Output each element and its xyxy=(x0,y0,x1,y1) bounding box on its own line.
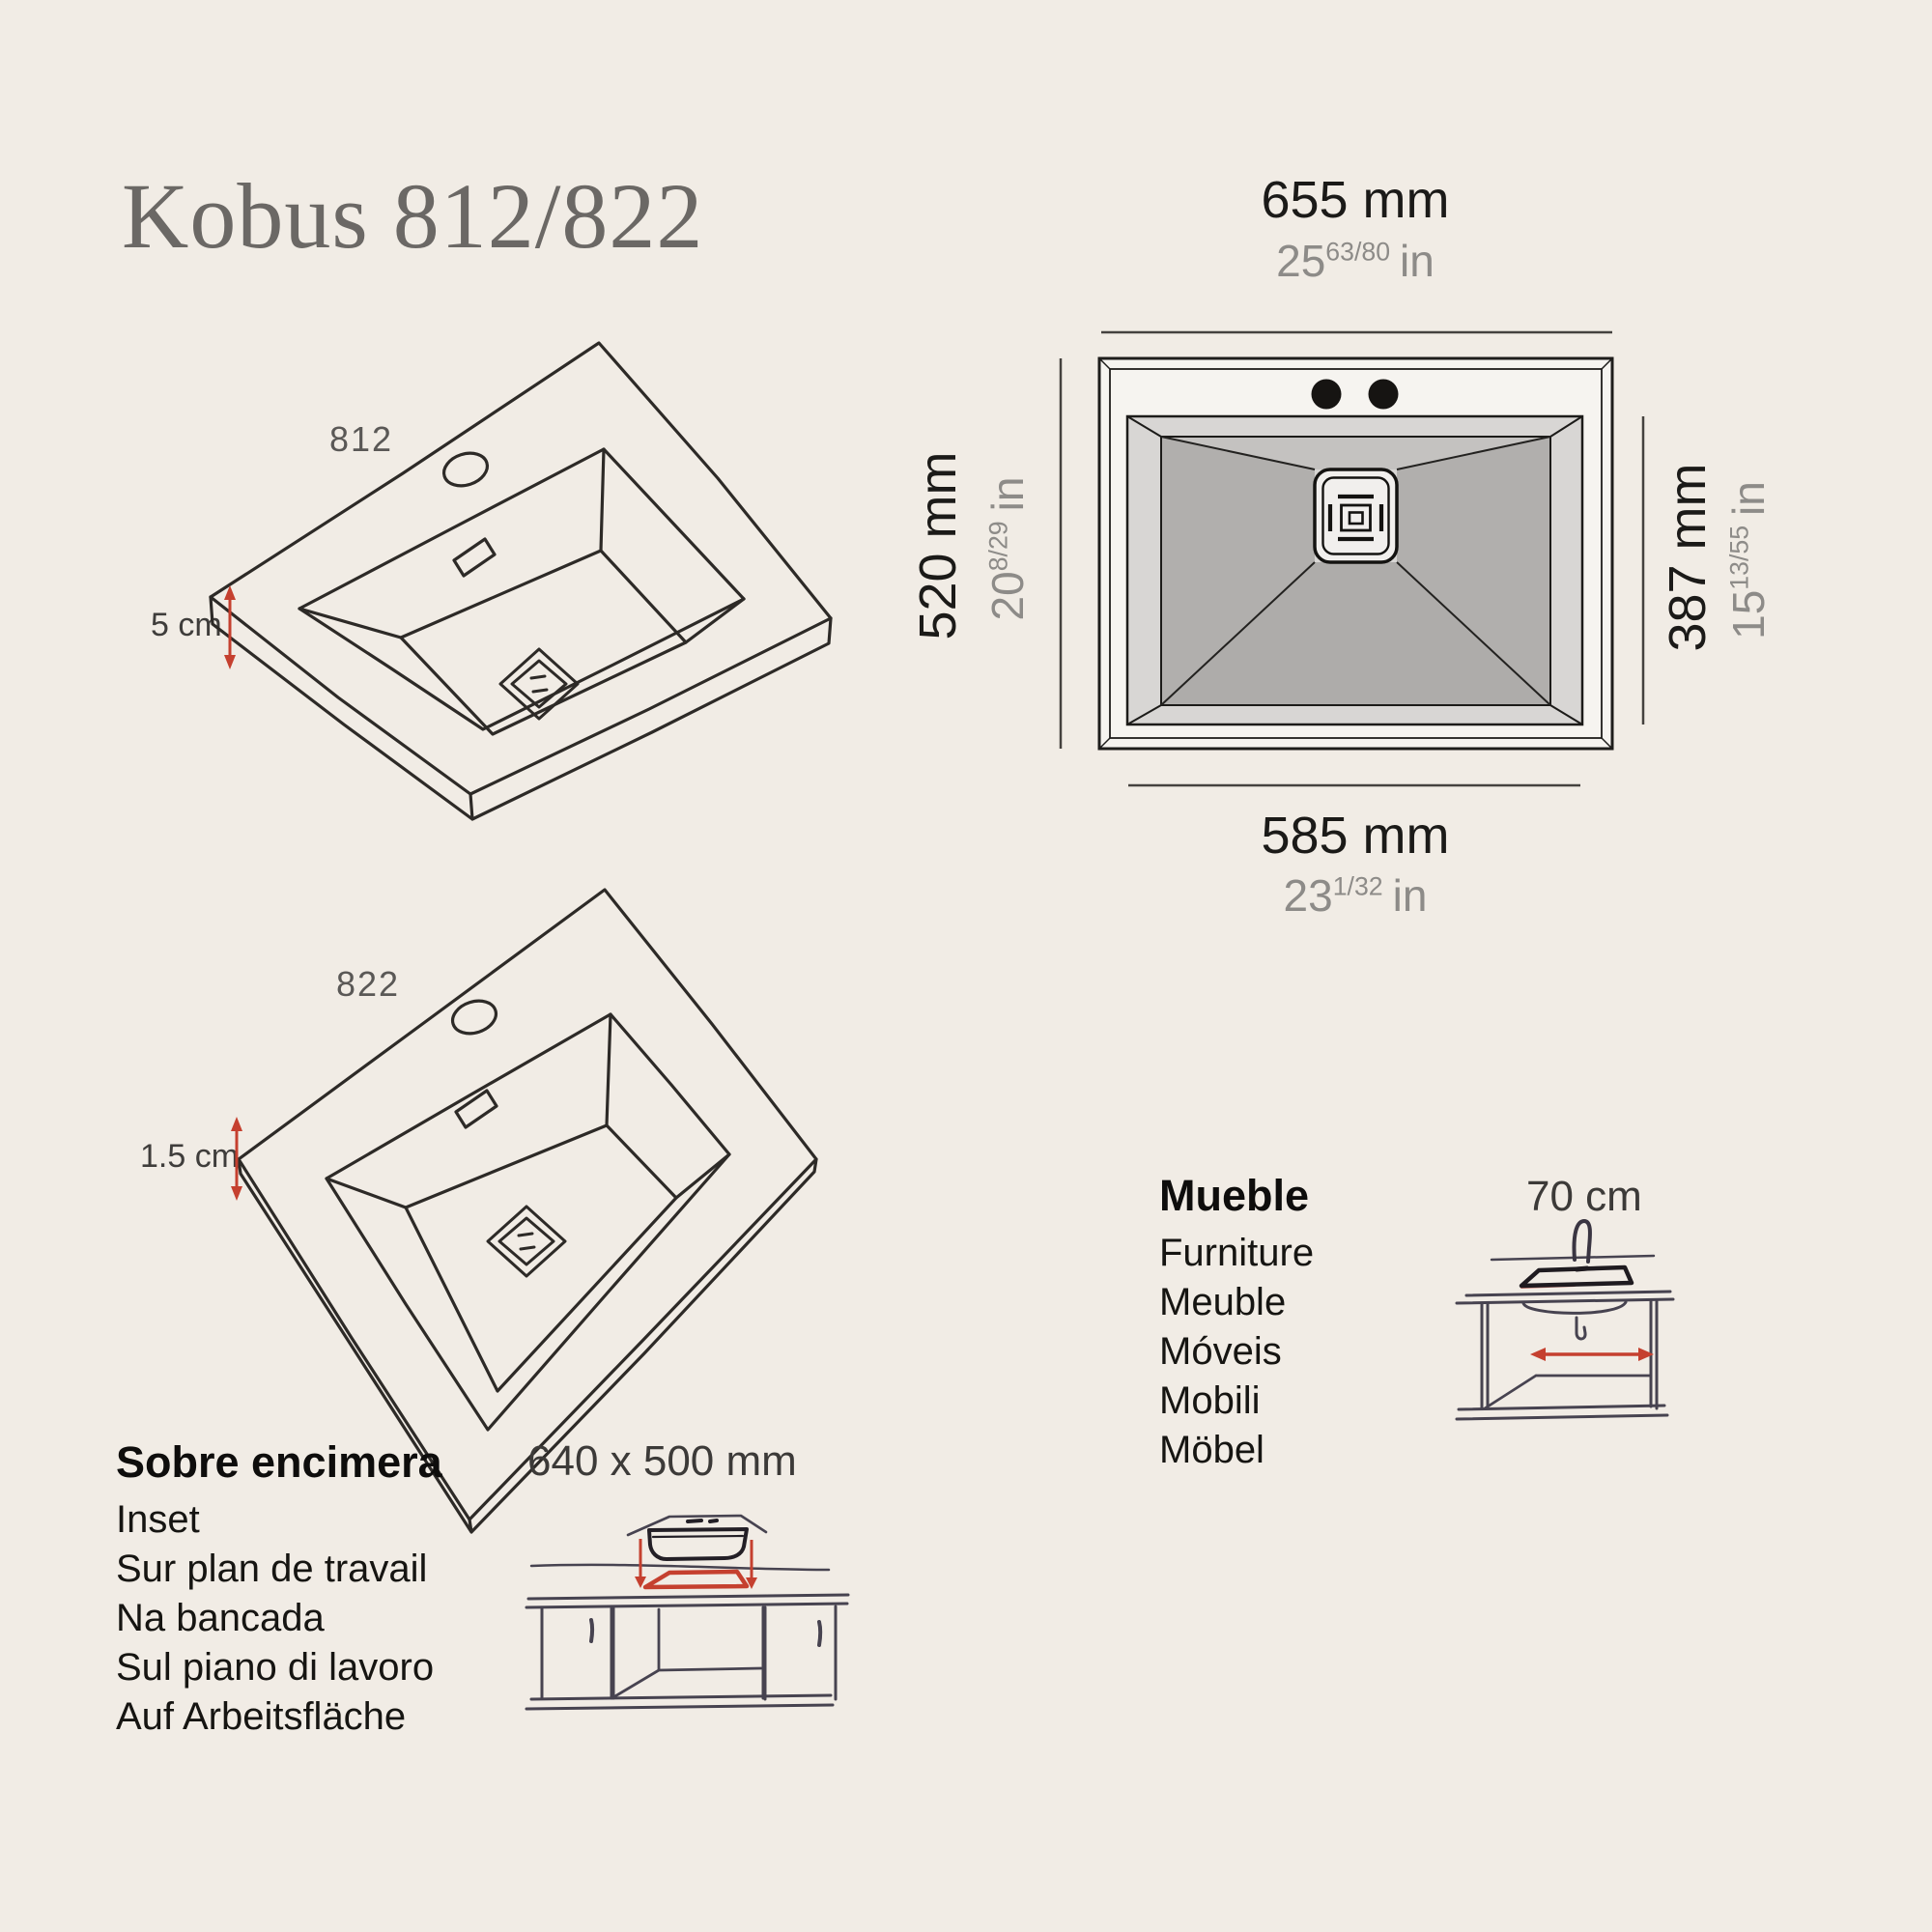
cabinet-base-lines xyxy=(526,1695,833,1709)
furniture-cabinet-sketch xyxy=(1430,1198,1758,1468)
basin-corner-seams xyxy=(299,449,744,642)
drain-icon xyxy=(1315,469,1397,562)
left-door-handle xyxy=(591,1620,592,1641)
dimension-width-mm: 655 mm xyxy=(1261,170,1449,230)
right-door-handle xyxy=(819,1622,820,1645)
furniture-item: Furniture xyxy=(1159,1229,1314,1278)
counter-front-edge xyxy=(526,1595,848,1607)
furniture-item: Móveis xyxy=(1159,1327,1314,1377)
faucet-icon xyxy=(1574,1221,1589,1262)
basin-floor-edge xyxy=(406,1125,676,1391)
inset-item: Na bancada xyxy=(116,1594,442,1643)
dimension-width-inches: 2563/80in xyxy=(1276,235,1435,287)
overflow-slot-icon xyxy=(456,1091,497,1127)
basin-opening-edge xyxy=(299,449,744,729)
furniture-item: Meuble xyxy=(1159,1278,1314,1327)
furniture-item: Mobili xyxy=(1159,1377,1314,1426)
dimension-basin-width-mm: 585 mm xyxy=(1261,806,1449,866)
cabinet-base-lines xyxy=(1457,1406,1667,1419)
sink-bowl xyxy=(649,1529,747,1559)
overflow-slot-icon xyxy=(454,539,495,576)
basin-opening-edge xyxy=(327,1014,729,1430)
furniture-item: Möbel xyxy=(1159,1426,1314,1475)
inset-item: Auf Arbeitsfläche xyxy=(116,1692,442,1742)
spec-sheet-page: { "title": "Kobus 812/822", "colors": { … xyxy=(0,0,1932,1932)
inset-cutout-label: 640 x 500 mm xyxy=(527,1437,797,1486)
inset-cabinet-sketch xyxy=(512,1492,927,1821)
sink-thickness-edge xyxy=(211,597,831,819)
inset-text-block: Sobre encimera Inset Sur plan de travail… xyxy=(116,1437,442,1742)
tap-holes xyxy=(688,1520,717,1521)
dimension-height-mm: 520 mm xyxy=(908,451,968,639)
inset-item: Sur plan de travail xyxy=(116,1545,442,1594)
counter-back-edge xyxy=(531,1565,829,1570)
left-door-edges xyxy=(542,1607,611,1698)
width-arrow-icon xyxy=(1530,1348,1654,1361)
cutout-outline-icon xyxy=(645,1572,747,1587)
sink-bowl-under-counter xyxy=(1523,1302,1626,1313)
model-812-sketch xyxy=(164,319,860,845)
opening-interior-lines xyxy=(613,1609,761,1697)
sink-outer-edge xyxy=(211,343,831,794)
drain-icon xyxy=(500,649,578,719)
dimension-basin-width-inches: 231/32in xyxy=(1284,869,1428,922)
dimension-basin-height-inches: 1513/55in xyxy=(1722,481,1775,639)
dimension-basin-height-mm: 387 mm xyxy=(1658,463,1718,651)
basin-floor-edge xyxy=(401,551,686,734)
drain-pipe-icon xyxy=(1577,1318,1585,1339)
drain-icon xyxy=(488,1207,565,1276)
depth-arrow-icon xyxy=(224,585,236,669)
cabinet-interior-lines xyxy=(1485,1376,1651,1408)
inset-item: Sul piano di lavoro xyxy=(116,1643,442,1692)
furniture-text-block: Mueble Furniture Meuble Móveis Mobili Mö… xyxy=(1159,1171,1314,1475)
tap-base xyxy=(1577,1268,1587,1269)
basin-corner-seams xyxy=(327,1014,729,1207)
sink-rim-line xyxy=(653,1536,743,1537)
inset-heading: Sobre encimera xyxy=(116,1437,442,1487)
faucet-hole-icon xyxy=(440,448,492,492)
dimension-height-inches: 208/29in xyxy=(981,477,1034,621)
countertop-lines xyxy=(1457,1292,1673,1303)
faucet-hole-icon xyxy=(448,996,500,1039)
page-title: Kobus 812/822 xyxy=(122,162,703,270)
right-door-edges xyxy=(765,1606,836,1699)
furniture-heading: Mueble xyxy=(1159,1171,1314,1220)
sink-outer-edge xyxy=(239,890,816,1520)
inset-item: Inset xyxy=(116,1495,442,1545)
